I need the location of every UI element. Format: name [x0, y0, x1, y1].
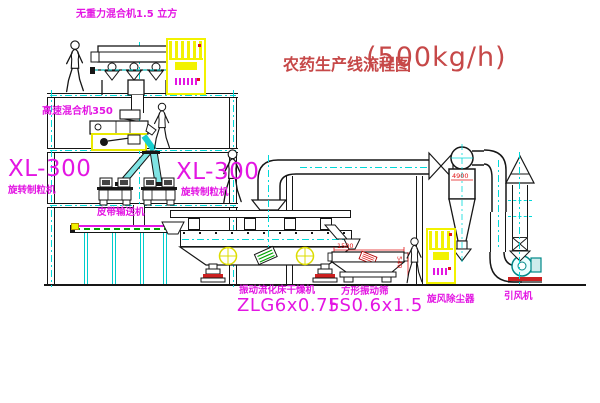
label-gravity-mixer: 无重力混合机1.5 立方 [76, 10, 177, 20]
centerline-duct-vertical [268, 155, 269, 247]
granulator-right-drawing [141, 177, 177, 206]
label-sieve-model: FS0.6x1.5 [329, 297, 423, 315]
dryer-support-cylinder [188, 218, 200, 230]
stack-flange-mark [508, 216, 532, 217]
label-fan: 引风机 [504, 292, 533, 302]
cabinet-red-dot [197, 78, 200, 81]
conveyor-drive-box [71, 223, 79, 230]
conveyor-leg [84, 233, 88, 284]
label-granulator-right-name: 旋转制粒机 [181, 188, 229, 198]
label-belt-conveyor: 皮带输送机 [97, 208, 145, 218]
stack-cross-brace [512, 237, 528, 251]
diagram-title-capacity: (500kg/h) [366, 42, 507, 73]
conveyor-leg [140, 233, 144, 284]
dryer-support-cylinder [284, 218, 296, 230]
dryer-exhaust-duct [250, 138, 435, 212]
cabinet-indicator-strip [433, 268, 449, 275]
label-dryer-model: ZLG6x0.75 [237, 297, 340, 315]
dimension-sieve-length: 1500 [337, 243, 354, 250]
label-granulator-left-model: XL-300 [8, 158, 91, 181]
dryer-spring-mount-left [198, 264, 228, 285]
label-high-speed-mixer: 高速混合机350 [42, 107, 113, 117]
cabinet-indicator-strip [175, 78, 197, 85]
cabinet-panel [175, 62, 197, 70]
flow-diagram-canvas: 无重力混合机1.5 立方 农药生产线流程图 (500kg/h) 高速混合机350… [0, 0, 600, 403]
label-granulator-right-model: XL-300 [176, 161, 259, 184]
stack-flange-mark [508, 200, 532, 201]
cabinet-red-dot [198, 44, 201, 47]
stack-reducer [509, 250, 531, 262]
dryer-support-cylinder [244, 218, 256, 230]
exhaust-stack [512, 185, 528, 237]
cabinet-red-dot [449, 233, 452, 236]
cabinet-red-dot [448, 267, 451, 270]
conveyor-leg [112, 233, 116, 284]
worker-figure [403, 236, 426, 285]
belt-conveyor-deck [74, 225, 172, 233]
dimension-cyclone: 4900 [452, 173, 469, 180]
centerline-stack [519, 152, 520, 284]
conveyor-belt-dashes [74, 228, 172, 230]
granulator-left-drawing [97, 177, 133, 206]
worker-figure [62, 38, 88, 95]
centerline-duct-horizontal [300, 167, 430, 168]
label-granulator-left-name: 旋转制粒机 [8, 186, 56, 196]
control-cabinet-ground [426, 228, 456, 284]
centerline-fan-duct [498, 160, 499, 250]
control-cabinet-roof [166, 38, 206, 95]
cabinet-panel [433, 252, 449, 260]
dimension-sieve-height: 540 [396, 256, 403, 268]
worker-figure [150, 102, 174, 150]
conveyor-leg [163, 233, 167, 284]
label-cyclone: 旋风除尘器 [427, 295, 475, 305]
stack-rain-cap [505, 155, 535, 185]
